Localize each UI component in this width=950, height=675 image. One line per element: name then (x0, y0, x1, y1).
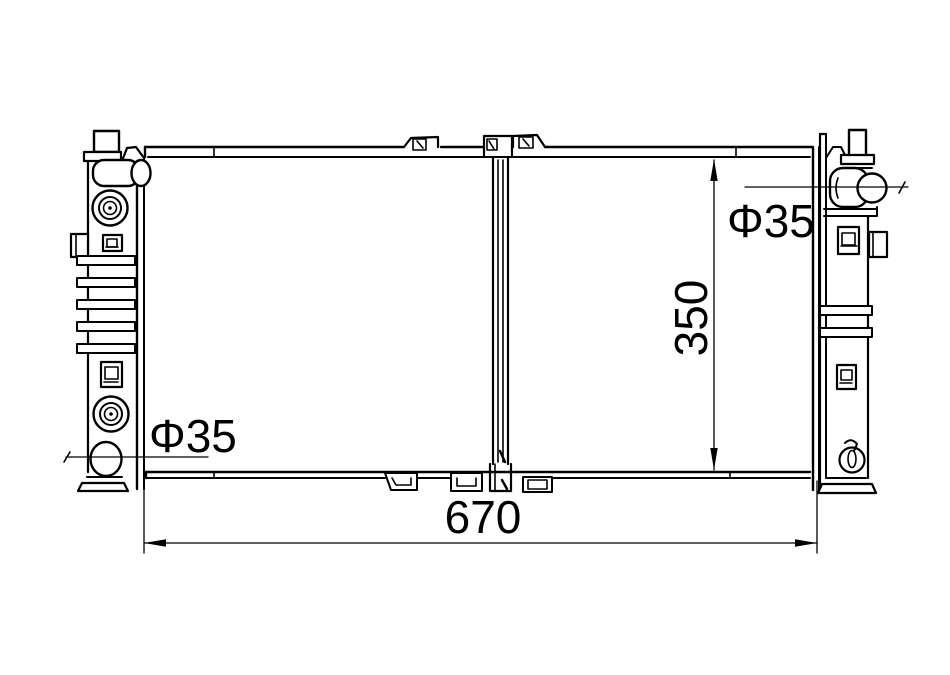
right-lower-fitting (837, 365, 856, 389)
left-drain-plug (94, 397, 129, 432)
right-drain-valve (840, 440, 865, 472)
arrow-left-icon (144, 539, 166, 547)
right-pipe-end (858, 174, 887, 203)
dim-width-label: 670 (445, 491, 522, 543)
bottom-pocket-left (385, 473, 417, 490)
dim-height-label: 350 (665, 280, 717, 357)
arrow-up-icon (710, 159, 717, 181)
dim-left-diameter-label: Φ35 (149, 410, 237, 462)
left-tank-ribs (77, 256, 135, 353)
center-divider (484, 136, 512, 491)
dim-right-diameter-label: Φ35 (727, 195, 815, 247)
left-pipe-end (132, 160, 151, 186)
left-side-tab (71, 234, 88, 257)
arrow-down-icon (710, 448, 717, 470)
right-foot-bracket (818, 484, 876, 493)
radiator-technical-drawing: 670 350 Φ35 Φ35 (0, 0, 950, 675)
left-outlet-port (91, 442, 122, 476)
dimension-core-height: 350 (665, 159, 718, 470)
left-foot-bracket (78, 483, 128, 491)
left-upper-fitting (103, 235, 122, 251)
right-pipe-boss-base (824, 207, 877, 216)
drawing-page: 670 350 Φ35 Φ35 (0, 0, 950, 675)
right-side-tab (869, 232, 887, 257)
core-top-band (145, 135, 812, 157)
arrow-right-icon (795, 539, 817, 547)
core-bottom-band (146, 472, 810, 492)
right-tank (818, 130, 887, 493)
left-lower-fitting (101, 362, 122, 387)
right-tank-ribs (820, 306, 872, 337)
right-upper-fitting (838, 227, 859, 254)
bottom-pocket-center (451, 473, 482, 491)
right-mount-flange (841, 155, 874, 164)
right-top-bracket (849, 130, 866, 156)
left-tank (71, 131, 151, 491)
radiator-cap (93, 191, 128, 226)
left-top-bracket (94, 131, 119, 152)
